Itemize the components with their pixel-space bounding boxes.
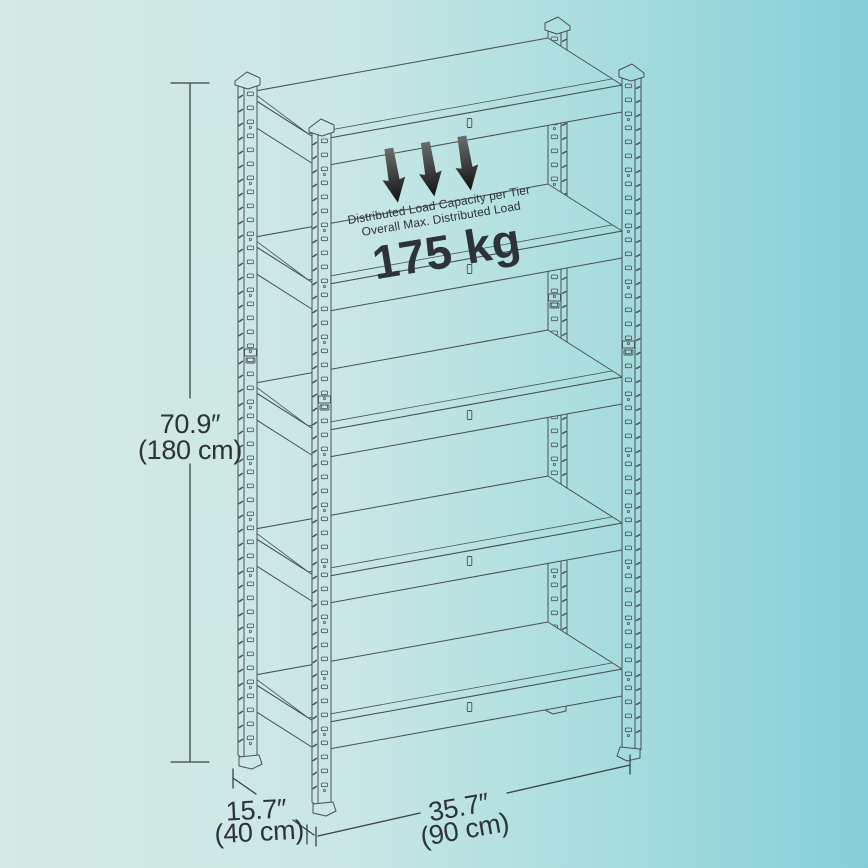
diagram-canvas: 70.9″ (180 cm) 15.7″ (40 cm) 35.7″ (90 c… <box>0 0 868 868</box>
product-dimension-diagram: 70.9″ (180 cm) 15.7″ (40 cm) 35.7″ (90 c… <box>0 0 868 868</box>
depth-metric-value: (40 cm) <box>214 815 305 850</box>
height-metric-value: (180 cm) <box>138 435 242 465</box>
